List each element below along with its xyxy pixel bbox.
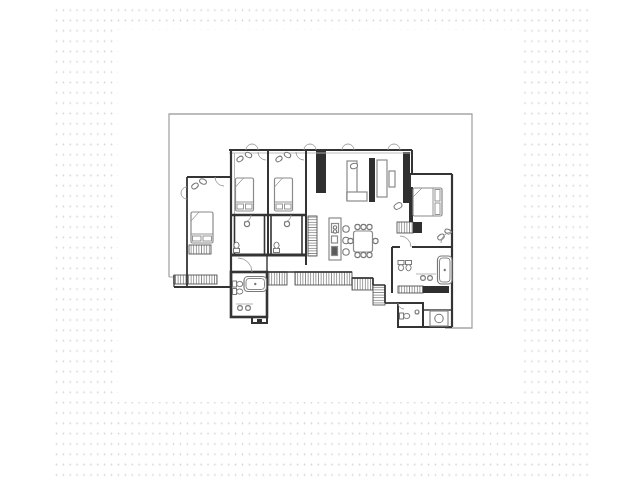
wardrobe-bedroom-left bbox=[189, 245, 211, 254]
dining-chair bbox=[355, 252, 360, 257]
tank bbox=[398, 261, 404, 265]
toilet-master-1 bbox=[398, 261, 404, 271]
floor-plan bbox=[0, 0, 640, 480]
bidet-central bbox=[233, 289, 243, 295]
pillow bbox=[203, 236, 212, 241]
drain bbox=[444, 269, 446, 271]
bed-left bbox=[191, 212, 213, 243]
screenshot-stage bbox=[0, 0, 640, 480]
tank bbox=[233, 281, 237, 287]
bathtub-central bbox=[244, 277, 267, 292]
tank bbox=[406, 261, 412, 265]
toilet-bath-2 bbox=[234, 242, 240, 252]
toilet-bath-3 bbox=[274, 242, 280, 252]
pantry-column bbox=[308, 216, 317, 256]
dresser-dark bbox=[413, 222, 422, 233]
shell-layer bbox=[169, 114, 472, 328]
pillow bbox=[276, 204, 283, 209]
sink-master-2 bbox=[428, 276, 433, 281]
tank bbox=[274, 249, 280, 253]
toilet-master-2 bbox=[406, 261, 412, 271]
master-bath-counter-dark bbox=[423, 286, 449, 293]
bar-stool bbox=[343, 249, 349, 255]
dining-chair bbox=[355, 224, 360, 229]
washer-drum bbox=[435, 314, 443, 322]
pillow bbox=[246, 204, 253, 209]
building-shell-outline bbox=[169, 114, 472, 328]
bed-3 bbox=[275, 178, 293, 211]
sink-central-1 bbox=[238, 306, 243, 311]
corridor-bend-closet bbox=[373, 285, 385, 305]
bowl bbox=[404, 313, 410, 318]
master-bath-counter-hatch bbox=[398, 286, 423, 293]
pillow bbox=[193, 236, 202, 241]
pillow bbox=[435, 190, 440, 202]
bowl bbox=[398, 265, 403, 271]
dining-chair bbox=[348, 238, 353, 243]
bowl bbox=[406, 265, 411, 271]
bed-master bbox=[413, 188, 442, 216]
tank bbox=[400, 313, 404, 319]
bowl bbox=[237, 281, 243, 286]
drain bbox=[254, 283, 256, 285]
island-cooktop bbox=[332, 236, 338, 243]
island-tap bbox=[333, 230, 336, 233]
bathtub-master bbox=[438, 256, 453, 284]
dining-chair bbox=[373, 238, 378, 243]
bed-2 bbox=[236, 178, 254, 211]
dining-chair bbox=[367, 224, 372, 229]
closet-bottom-left bbox=[174, 275, 217, 284]
toilet-central bbox=[233, 281, 243, 287]
closet-wall-column bbox=[316, 151, 326, 193]
hall-closet-b bbox=[295, 272, 352, 285]
living-east-wall bbox=[403, 152, 410, 203]
hall-closet-a bbox=[268, 272, 287, 285]
hall-closet-c bbox=[352, 278, 373, 290]
sink-wc bbox=[415, 310, 419, 314]
tv-partition bbox=[369, 158, 375, 202]
tank bbox=[233, 289, 237, 295]
tank bbox=[234, 249, 240, 253]
pillow bbox=[237, 204, 244, 209]
coffee-table bbox=[389, 171, 395, 187]
dresser-hatch bbox=[397, 222, 413, 233]
sink-master-1 bbox=[421, 276, 426, 281]
sofa-right bbox=[377, 160, 387, 197]
bowl bbox=[274, 242, 279, 248]
sink-central-2 bbox=[246, 306, 251, 311]
dining-chair bbox=[361, 252, 366, 257]
island-tap bbox=[333, 226, 336, 229]
island-appliance bbox=[332, 247, 338, 256]
bowl bbox=[234, 242, 239, 248]
dining-table bbox=[354, 231, 373, 252]
pillow bbox=[435, 203, 440, 215]
bowl bbox=[237, 289, 243, 294]
toilet-wc bbox=[400, 313, 410, 319]
dining-chair bbox=[361, 224, 366, 229]
pillow bbox=[285, 204, 292, 209]
bar-stool bbox=[343, 226, 349, 232]
sofa-chaise bbox=[347, 192, 367, 201]
dining-chair bbox=[367, 252, 372, 257]
